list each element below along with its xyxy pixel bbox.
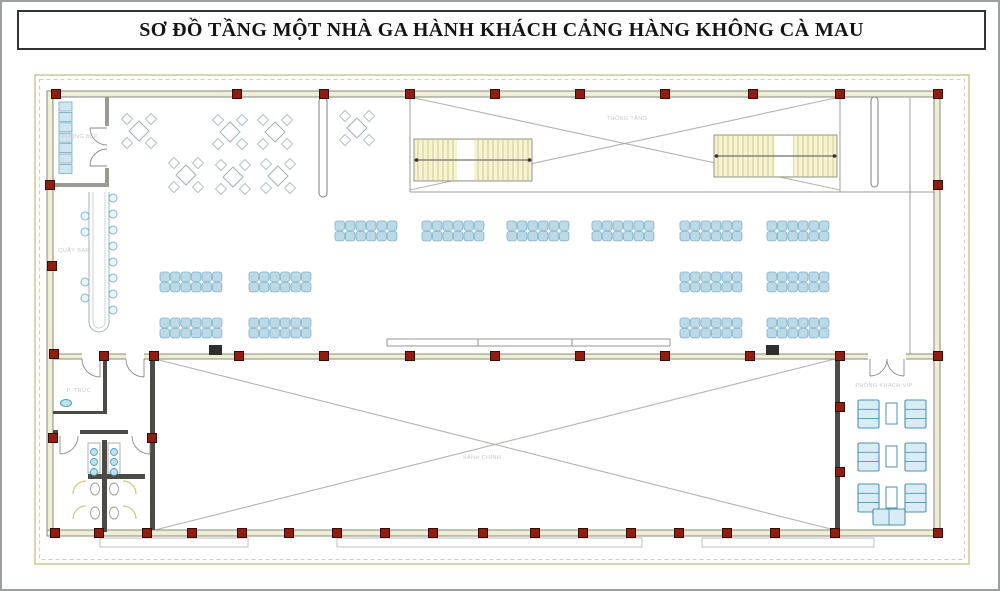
column — [188, 529, 197, 538]
column — [836, 90, 845, 99]
column — [52, 90, 61, 99]
dining-table — [340, 111, 375, 146]
column — [320, 352, 329, 361]
column — [320, 90, 329, 99]
bar-stool — [109, 242, 117, 250]
column — [491, 90, 500, 99]
stall-door — [73, 506, 86, 519]
column — [934, 181, 943, 190]
column — [429, 529, 438, 538]
column — [491, 352, 500, 361]
seat-block — [422, 221, 484, 241]
column — [49, 434, 58, 443]
sink — [91, 459, 98, 466]
sofa-group — [858, 484, 926, 512]
toilet — [110, 507, 119, 519]
column — [661, 90, 670, 99]
column — [238, 529, 247, 538]
column — [148, 434, 157, 443]
dining-table — [216, 160, 251, 195]
column — [627, 529, 636, 538]
column — [143, 529, 152, 538]
page-title: SƠ ĐỒ TẦNG MỘT NHÀ GA HÀNH KHÁCH CẢNG HÀ… — [139, 19, 864, 42]
column — [771, 529, 780, 538]
column — [836, 403, 845, 412]
stall-door — [73, 481, 86, 494]
column — [576, 352, 585, 361]
floor-plan: THÔNG TẦNG SẢNH CHÍNH PHÒNG KHÁCH VIP PH… — [2, 2, 1000, 591]
seat-block — [507, 221, 569, 241]
bar-stool — [81, 278, 89, 286]
bar-label: QUẦY BAR — [58, 247, 90, 254]
column — [576, 90, 585, 99]
bar-stool — [109, 290, 117, 298]
seat-block — [249, 318, 311, 338]
rack-shelf — [59, 112, 72, 121]
column — [333, 529, 342, 538]
screenshot-frame: THÔNG TẦNG SẢNH CHÍNH PHÒNG KHÁCH VIP PH… — [0, 0, 1000, 591]
column — [479, 529, 488, 538]
column — [285, 529, 294, 538]
sink — [91, 469, 98, 476]
stall-door — [123, 481, 136, 494]
column — [749, 90, 758, 99]
column — [934, 352, 943, 361]
column — [381, 529, 390, 538]
rack-shelf — [59, 164, 72, 173]
main-hall-label: SẢNH CHÍNH — [463, 454, 501, 461]
bar-stool — [109, 306, 117, 314]
column — [150, 352, 159, 361]
column — [723, 529, 732, 538]
seat-block — [767, 318, 829, 338]
rack-shelf — [59, 144, 72, 153]
column — [531, 529, 540, 538]
staircases — [414, 135, 837, 181]
seat-block — [680, 318, 742, 338]
bar-stool — [81, 228, 89, 236]
toilet — [91, 483, 100, 495]
seat-block — [160, 272, 222, 292]
rack-shelf — [59, 154, 72, 163]
column — [95, 529, 104, 538]
bar-stool — [81, 294, 89, 302]
office-label: P. TRỰC — [67, 388, 92, 394]
seat-block — [767, 272, 829, 292]
column — [48, 262, 57, 271]
sink — [91, 449, 98, 456]
dining-table — [213, 115, 248, 150]
column — [406, 90, 415, 99]
seat-block — [160, 318, 222, 338]
sofa-group — [858, 400, 926, 428]
column — [836, 468, 845, 477]
sink — [111, 469, 118, 476]
column — [934, 529, 943, 538]
dining-table — [258, 115, 293, 150]
bar-stool — [109, 194, 117, 202]
sanitary-fixtures — [61, 400, 137, 520]
column — [235, 352, 244, 361]
column — [50, 350, 59, 359]
seat-block — [592, 221, 654, 241]
dining-table — [261, 159, 296, 194]
column — [746, 352, 755, 361]
sink — [111, 449, 118, 456]
seat-block — [249, 272, 311, 292]
bar-stool — [109, 210, 117, 218]
bar-stool — [109, 274, 117, 282]
column — [46, 181, 55, 190]
upper-void-label: THÔNG TẦNG — [607, 115, 648, 122]
seat-block — [680, 272, 742, 292]
column — [579, 529, 588, 538]
sink — [111, 459, 118, 466]
column — [51, 529, 60, 538]
title-box: SƠ ĐỒ TẦNG MỘT NHÀ GA HÀNH KHÁCH CẢNG HÀ… — [17, 10, 986, 50]
rack-shelf — [59, 102, 72, 111]
column — [836, 352, 845, 361]
column — [934, 90, 943, 99]
column — [100, 352, 109, 361]
column — [661, 352, 670, 361]
sofa-group — [858, 443, 926, 471]
bar-stool — [81, 212, 89, 220]
dining-table — [169, 158, 204, 193]
kitchen-label: PHÒNG BẾP — [62, 133, 98, 140]
toilet — [110, 483, 119, 495]
bar-stool — [109, 258, 117, 266]
sink — [61, 400, 72, 407]
vip-room-label: PHÒNG KHÁCH VIP — [855, 382, 912, 389]
column — [831, 529, 840, 538]
column — [675, 529, 684, 538]
seat-block — [680, 221, 742, 241]
column — [406, 352, 415, 361]
seat-block — [767, 221, 829, 241]
stall-door — [123, 506, 136, 519]
bar-stool — [109, 226, 117, 234]
dining-table — [122, 114, 157, 149]
rack-shelf — [59, 123, 72, 132]
toilet — [91, 507, 100, 519]
seat-block — [335, 221, 397, 241]
column — [233, 90, 242, 99]
